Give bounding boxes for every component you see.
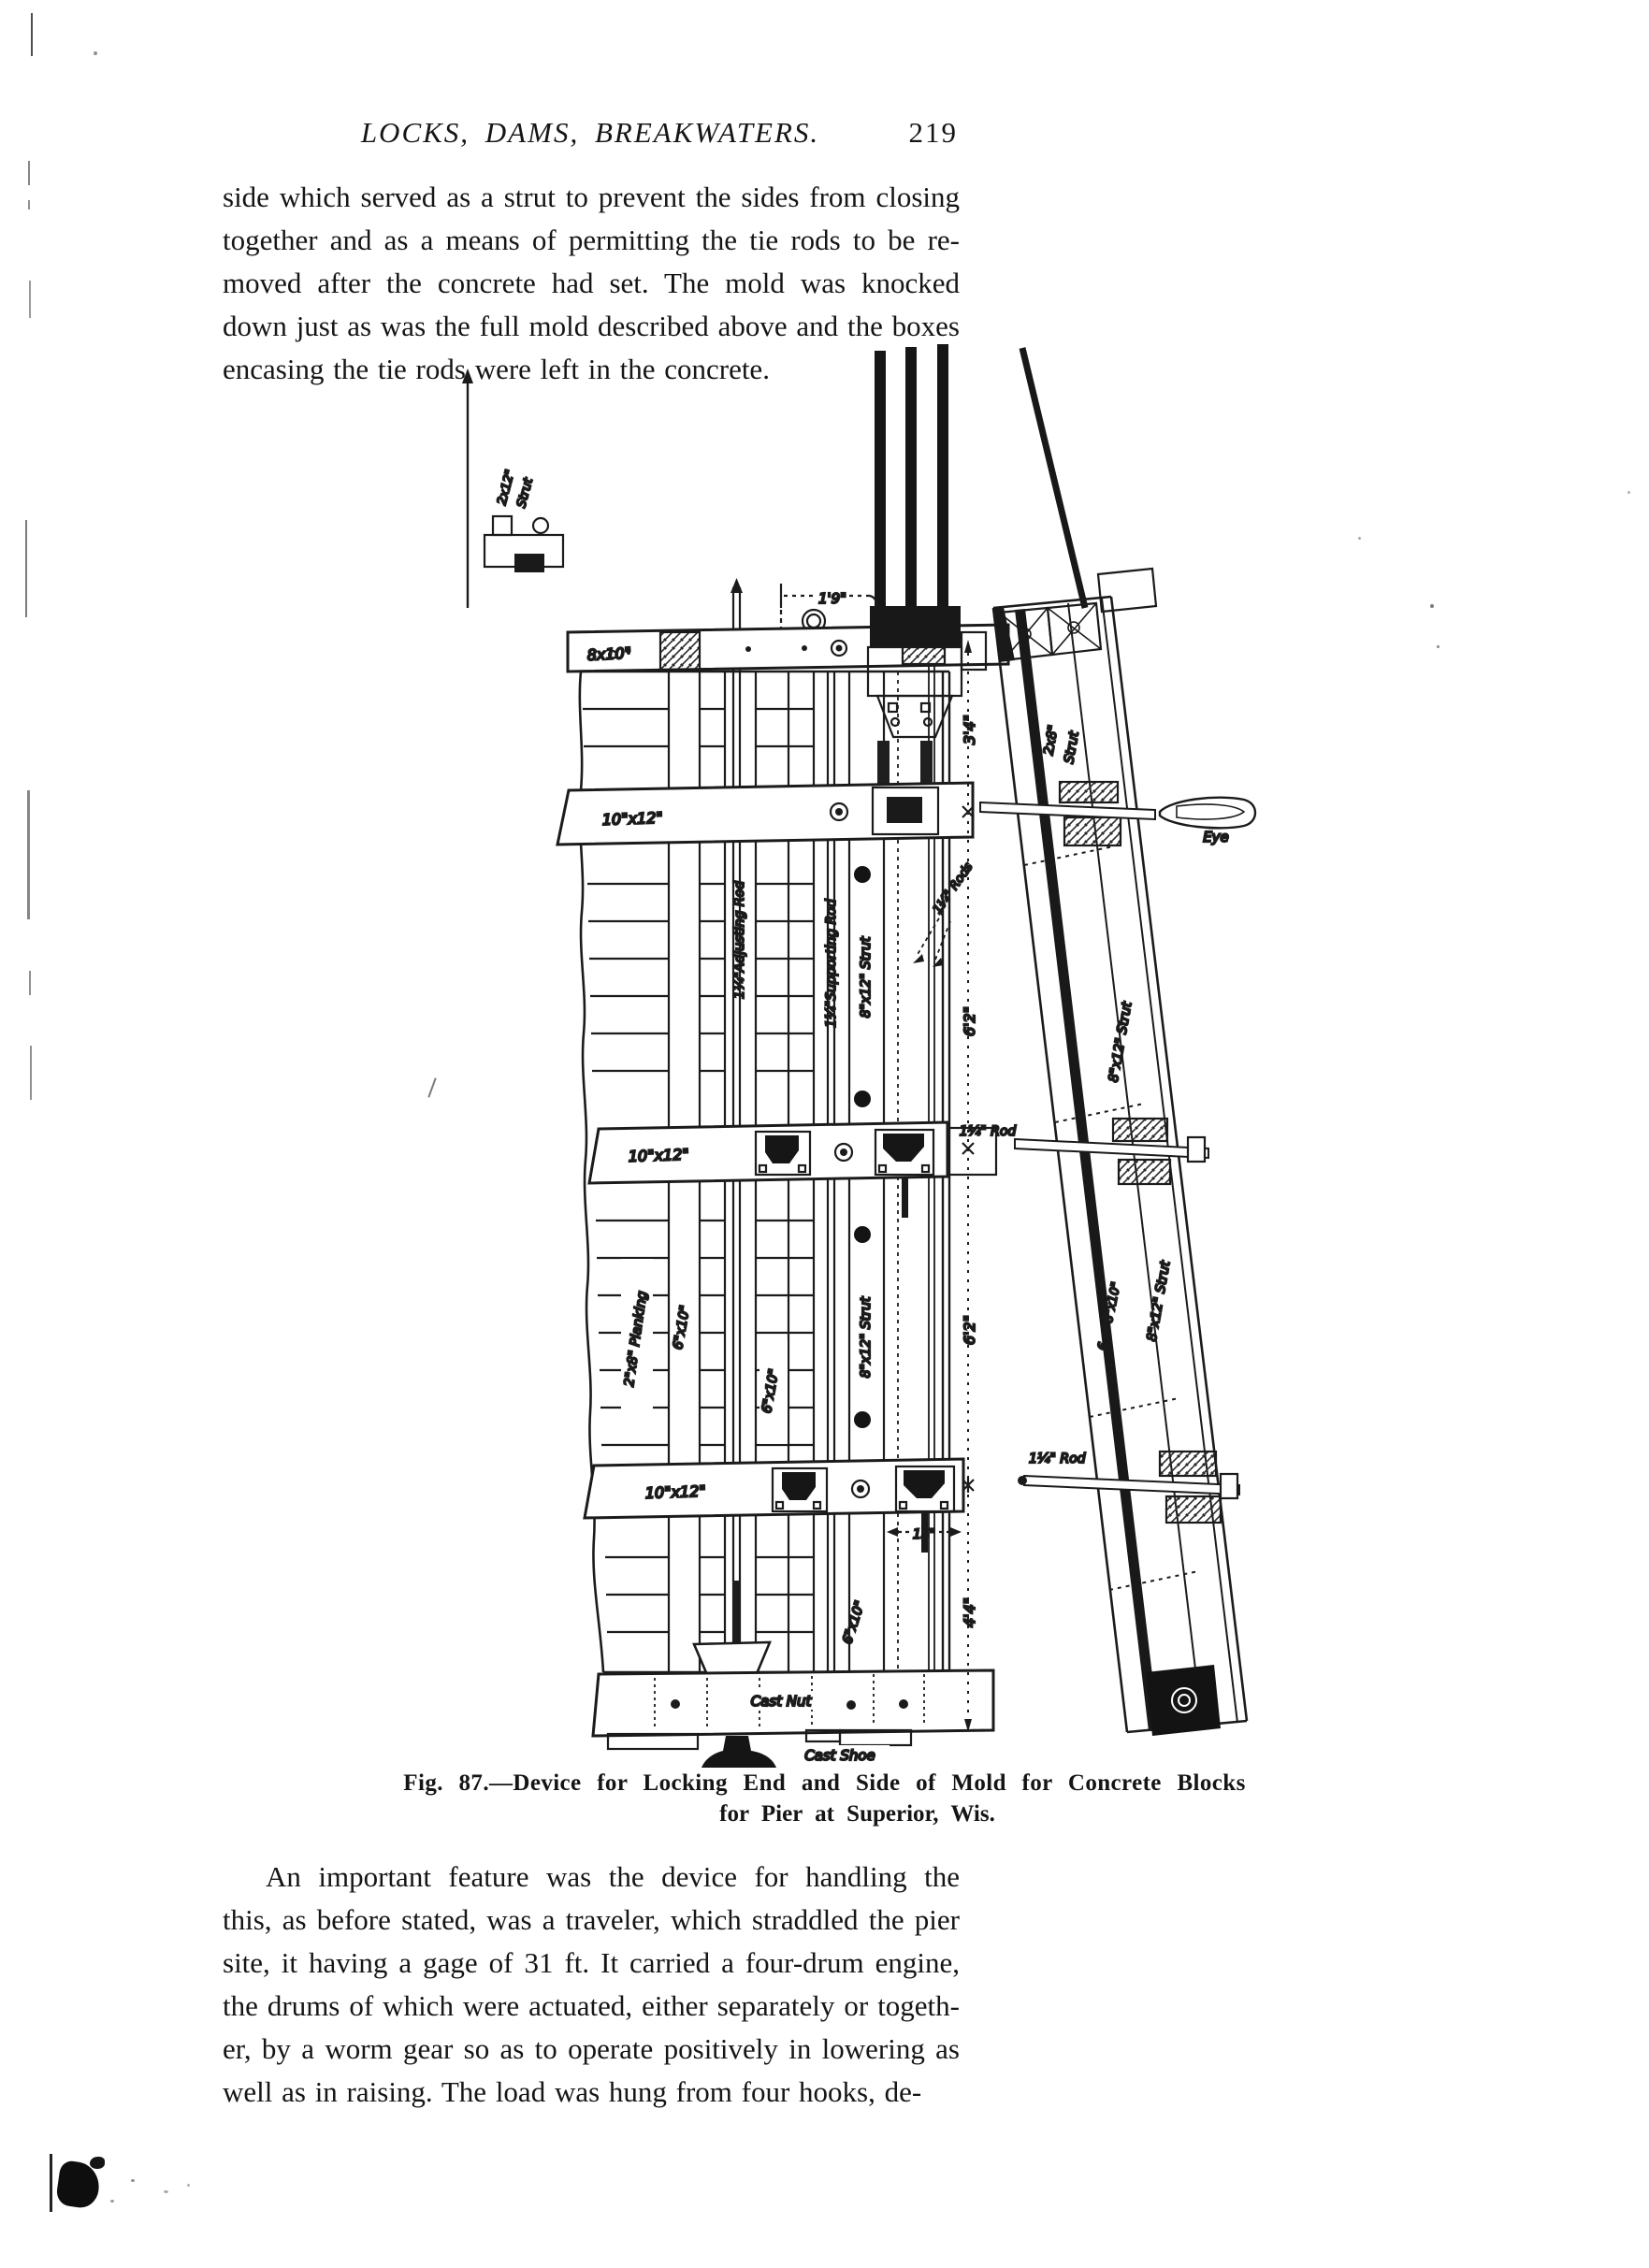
label-supporting-rod: 1¼"Supporting Rod [824,899,839,1028]
label-2x12-strut: 2x12" [495,469,517,507]
label-8x10: 8x10" [586,644,631,664]
text-line: well as in raising. The load was hung fr… [223,2071,960,2114]
label-cast-nut: Cast Nut [751,1693,813,1710]
label-6x10: 6"x10" [671,1304,693,1351]
scan-artifact [31,13,33,56]
figure-caption: Fig. 87.—Device for Locking End and Side… [281,1768,1368,1829]
page-number: 219 [909,116,959,150]
label-cast-shoe: Cast Shoe [804,1747,875,1764]
upper-clamp-bracket [485,516,563,572]
label-8x12-strut: 8"x12" Strut [859,936,874,1018]
paragraph-2: An important feature was the device for … [223,1856,960,2114]
scan-artifact [29,971,31,995]
waler-1: 10"x12" [557,741,973,845]
label-dim-4-4: 4'4" [961,1597,978,1627]
scan-artifact [30,1046,32,1100]
text-line: the drums of which were actuated, either… [223,1985,960,2028]
text-line: together and as a means of permitting th… [223,219,960,262]
label-2x12-strut: Strut [514,476,536,510]
label-dim-3-4: 3'4" [961,715,978,744]
text-line: side which served as a strut to prevent … [223,176,960,219]
text-line: An important feature was the device for … [223,1856,960,1899]
scan-speck [1437,645,1439,648]
scan-speck [187,2184,190,2187]
diagonal-rod [1022,348,1085,608]
scan-speck [1627,491,1630,494]
scan-artifact [28,200,30,209]
label-10x12: 10"x12" [644,1482,706,1502]
label-dim-6-2: 6'2" [961,1315,978,1345]
caption-line-1: Fig. 87.—Device for Locking End and Side… [281,1768,1368,1799]
figure-87: 2x12" Strut 1'9" [360,341,1286,1786]
scan-artifact [28,161,30,185]
cast-shoe [702,1736,776,1768]
upper-adjusting-rod [462,368,473,608]
scan-speck [94,51,97,55]
svg-text:1'9": 1'9" [818,590,846,607]
text-line: site, it having a gage of 31 ft. It carr… [223,1942,960,1985]
label-8x12-strut: 8"x12" Strut [859,1296,874,1378]
scan-speck [1430,604,1434,608]
scan-speck [1358,537,1361,540]
scan-artifact [29,281,31,318]
label-8x12-strut: 8"x12" Strut [1107,1001,1135,1084]
text-line: this, as before stated, was a traveler, … [223,1899,960,1942]
label-adjusting-rod: 1¼"Adjusting Rod [732,881,747,999]
label-10x12: 10"x12" [628,1146,689,1165]
scan-artifact [25,520,27,617]
page-header: LOCKS, DAMS, BREAKWATERS. 219 [223,116,958,153]
caption-line-2: for Pier at Superior, Wis. [281,1799,1368,1829]
scan-speck [110,2200,114,2203]
waler-3: 10"x12" [585,1459,963,1553]
label-2x8-strut: 2x8" [1041,724,1061,757]
label-eye: Eye [1203,829,1229,845]
scan-speck [131,2179,135,2182]
svg-text:15": 15" [913,1527,935,1542]
rods-callout: 1¼" Rods [913,860,976,967]
label-6x10: 6"x10" [840,1599,868,1646]
scanned-book-page: { "header": { "title": "LOCKS, DAMS, BRE… [0,0,1649,2268]
figure-87-diagram: 2x12" Strut 1'9" [360,341,1286,1786]
ink-bar [50,2154,52,2212]
top-tie-rods [875,344,948,621]
label-rod: 1¼" Rod [1029,1452,1086,1466]
lifting-ring-inner [807,614,820,628]
label-2x8-strut: Strut [1062,730,1082,764]
label-dim-6-2: 6'2" [961,1006,978,1036]
text-line: er, by a worm gear so as to operate posi… [223,2028,960,2071]
scan-artifact [27,790,30,919]
scan-speck [164,2190,168,2193]
ink-blot-small [90,2157,105,2169]
text-line: moved after the concrete had set. The mo… [223,262,960,305]
svg-text:1¼" Rods: 1¼" Rods [931,860,976,917]
running-title: LOCKS, DAMS, BREAKWATERS. [223,116,958,150]
label-10x12: 10"x12" [601,809,663,829]
